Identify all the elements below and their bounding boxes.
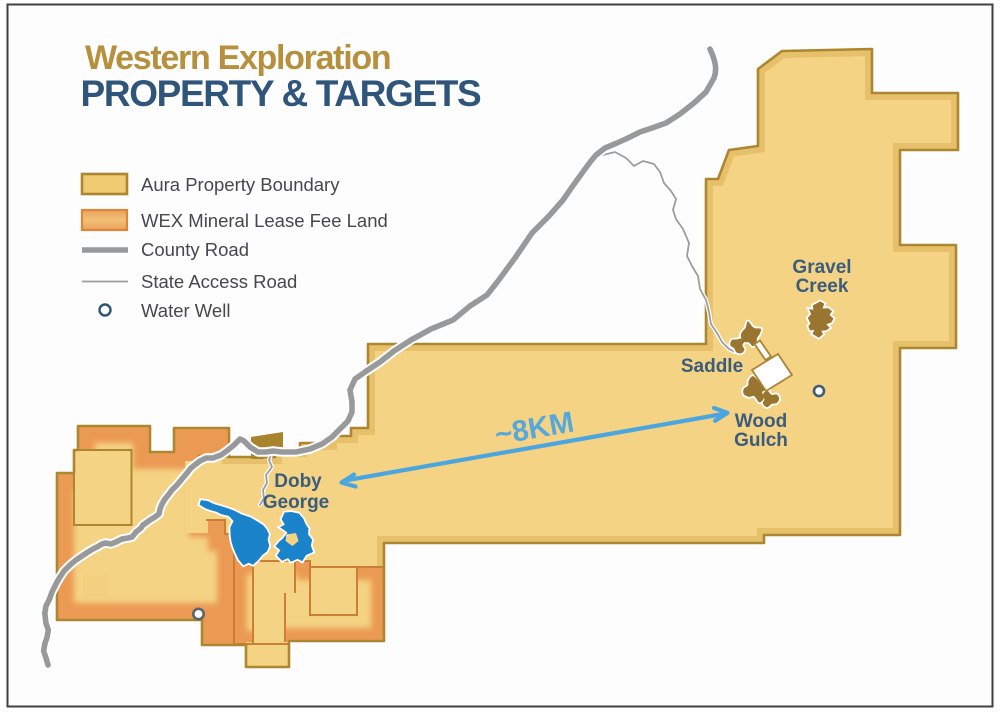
svg-text:State Access Road: State Access Road [141, 271, 297, 292]
svg-text:WEX Mineral Lease Fee Land: WEX Mineral Lease Fee Land [141, 210, 388, 231]
svg-text:Creek: Creek [796, 276, 849, 297]
svg-text:PROPERTY & TARGETS: PROPERTY & TARGETS [81, 73, 482, 114]
svg-text:Aura Property Boundary: Aura Property Boundary [141, 174, 340, 195]
svg-text:Doby: Doby [274, 471, 322, 492]
svg-text:Saddle: Saddle [681, 356, 743, 377]
svg-text:Wood: Wood [735, 411, 787, 432]
svg-text:Western Exploration: Western Exploration [85, 39, 390, 77]
svg-text:Gravel: Gravel [792, 257, 851, 278]
svg-text:County Road: County Road [141, 239, 249, 260]
svg-text:Water Well: Water Well [141, 300, 230, 321]
svg-text:George: George [263, 492, 330, 513]
svg-text:Gulch: Gulch [734, 430, 788, 451]
